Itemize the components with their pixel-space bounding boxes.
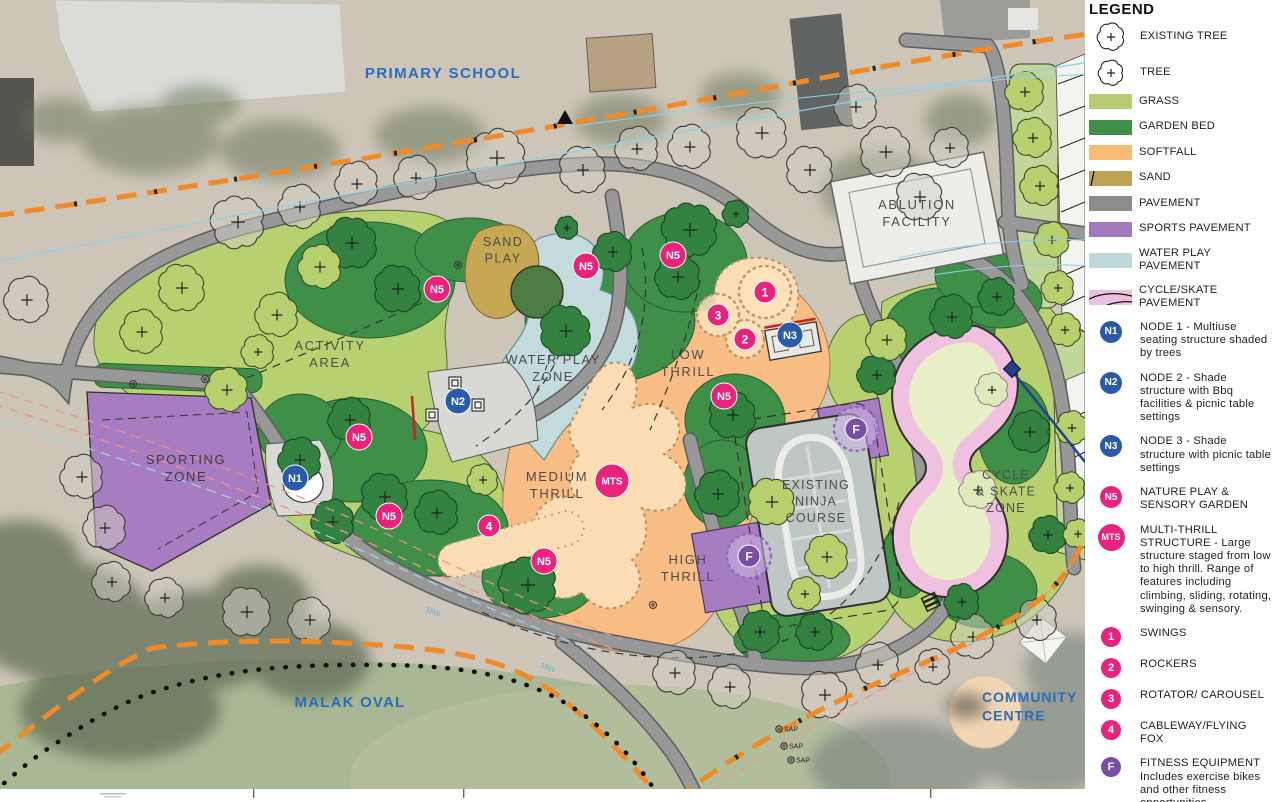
legend-swatch [1089, 196, 1132, 211]
map-marker-N5: N5 [660, 242, 686, 268]
svg-text:N5: N5 [352, 432, 366, 444]
legend-node-text: NODE 2 - Shade structure with Bbq facili… [1140, 372, 1272, 425]
legend-title: LEGEND [1089, 1, 1272, 18]
legend-item-water-play-pavement: WATER PLAY PAVEMENT [1089, 247, 1272, 273]
legend-node-text: ROTATOR/ CAROUSEL [1140, 689, 1264, 702]
legend-swatch [1089, 145, 1132, 160]
svg-text:NINJA: NINJA [795, 495, 837, 509]
legend-swatch [1089, 120, 1132, 135]
node-3-icon: 3 [1089, 689, 1133, 709]
legend-item-node-n5: N5NATURE PLAY & SENSORY GARDEN [1089, 486, 1272, 512]
svg-text:SAP: SAP [796, 758, 810, 765]
tree-symbol-icon [1089, 22, 1133, 52]
legend-item-tree: EXISTING TREE [1089, 22, 1272, 52]
legend-label: PAVEMENT [1139, 197, 1200, 210]
svg-text:ZONE: ZONE [986, 501, 1026, 515]
svg-text:ZONE: ZONE [165, 469, 208, 484]
map-marker-N5: N5 [573, 253, 599, 279]
area-label-malak-oval: MALAK OVAL [295, 694, 406, 711]
legend-label: SPORTS PAVEMENT [1139, 222, 1251, 235]
svg-text:THRILL: THRILL [661, 364, 715, 379]
legend-item-node-4: 4CABLEWAY/FLYING FOX [1089, 720, 1272, 746]
svg-text:N2: N2 [451, 396, 465, 408]
park-masterplan-page: { "legend": { "title": "LEGEND", "tree_i… [0, 0, 1276, 802]
svg-text:ZONE: ZONE [532, 369, 574, 384]
shed-roof [586, 34, 656, 92]
legend-node-text: ROCKERS [1140, 658, 1197, 671]
svg-text:ACTIVITY: ACTIVITY [294, 338, 365, 353]
map-marker-N2: N2 [445, 388, 471, 414]
svg-text:ABLUTION: ABLUTION [878, 197, 956, 212]
legend-item-cycle-skate-pavement: CYCLE/SKATE PAVEMENT [1089, 284, 1272, 310]
area-label-primary-school: PRIMARY SCHOOL [365, 65, 521, 82]
legend-label: CYCLE/SKATE PAVEMENT [1139, 284, 1272, 310]
legend-item-node-3: 3ROTATOR/ CAROUSEL [1089, 689, 1272, 709]
svg-text:N3: N3 [783, 330, 797, 342]
legend-tree-items: EXISTING TREETREE [1089, 22, 1272, 88]
legend-label: TREE [1140, 66, 1171, 79]
node-n1-icon: N1 [1089, 321, 1133, 343]
svg-text:MEDIUM: MEDIUM [526, 469, 588, 484]
svg-text:SPORTING: SPORTING [146, 452, 226, 467]
svg-text:N5: N5 [666, 250, 680, 262]
legend-item-garden-bed: GARDEN BED [1089, 120, 1272, 135]
legend-node-items: N1NODE 1 - Multiuse seating structure sh… [1089, 321, 1272, 802]
legend-swatch [1089, 222, 1132, 237]
svg-text:CENTRE: CENTRE [982, 707, 1046, 723]
legend-node-text: SWINGS [1140, 627, 1187, 640]
svg-text:2: 2 [742, 332, 749, 346]
svg-text:THRILL: THRILL [661, 569, 715, 584]
map-marker-N5: N5 [531, 548, 557, 574]
sheet-edge [0, 789, 1085, 802]
legend-label: WATER PLAY PAVEMENT [1139, 247, 1272, 273]
svg-text:EXISTING: EXISTING [782, 478, 850, 492]
svg-text:N5: N5 [430, 284, 444, 296]
map-marker-4: 4 [478, 515, 500, 537]
svg-text:SAP: SAP [789, 744, 803, 751]
legend-item-node-n2: N2NODE 2 - Shade structure with Bbq faci… [1089, 372, 1272, 425]
svg-text:WATER PLAY: WATER PLAY [505, 352, 600, 367]
svg-text:CYCLE: CYCLE [982, 468, 1030, 482]
svg-text:FACILITY: FACILITY [882, 214, 951, 229]
node-n3-icon: N3 [1089, 435, 1133, 457]
node-1-icon: 1 [1089, 627, 1133, 647]
svg-text:SAND: SAND [483, 235, 523, 249]
legend-item-node-n1: N1NODE 1 - Multiuse seating structure sh… [1089, 321, 1272, 361]
legend-label: SOFTFALL [1139, 146, 1197, 159]
legend-swatch-items: GRASSGARDEN BEDSOFTFALLSANDPAVEMENTSPORT… [1089, 94, 1272, 310]
legend-item-tree: TREE [1089, 58, 1272, 88]
tree-icon [555, 216, 577, 239]
tree-symbol-icon [1089, 58, 1133, 88]
svg-text:SAP: SAP [784, 727, 798, 734]
map-marker-1: 1 [739, 266, 791, 318]
map-marker-N3: N3 [777, 322, 803, 348]
legend-node-text: MULTI-THRILL STRUCTURE - Large structure… [1140, 524, 1272, 617]
legend-node-text: NODE 1 - Multiuse seating structure shad… [1140, 321, 1272, 361]
svg-text:AREA: AREA [309, 355, 351, 370]
map-marker-F: F [727, 534, 771, 578]
legend-item-node-1: 1SWINGS [1089, 627, 1272, 647]
svg-text:& SKATE: & SKATE [976, 485, 1036, 499]
legend-item-node-2: 2ROCKERS [1089, 658, 1272, 678]
legend-node-text: NODE 3 - Shade structure with picnic tab… [1140, 435, 1272, 475]
legend-swatch [1089, 290, 1132, 305]
svg-text:LOW: LOW [671, 347, 705, 362]
svg-text:MTS: MTS [601, 477, 622, 488]
map-marker-MTS: MTS [595, 464, 629, 498]
svg-text:N1: N1 [288, 473, 302, 485]
svg-text:4: 4 [486, 519, 493, 533]
svg-text:HIGH: HIGH [669, 552, 708, 567]
site-plan-map: N1N2N3N5N5N5N5N5N5N5MTS1234FF PRIMARY SC… [0, 0, 1085, 802]
legend-label: SAND [1139, 171, 1171, 184]
svg-text:F: F [745, 549, 752, 563]
node-f-icon: F [1089, 757, 1133, 777]
legend-item-grass: GRASS [1089, 94, 1272, 109]
node-4-icon: 4 [1089, 720, 1133, 740]
svg-text:F: F [852, 422, 859, 436]
map-marker-N5: N5 [711, 383, 737, 409]
legend-item-node-f: FFITNESS EQUIPMENT Includes exercise bik… [1089, 757, 1272, 802]
map-marker-N5: N5 [424, 276, 450, 302]
legend-item-sand: SAND [1089, 171, 1272, 186]
node-mts-icon: MTS [1089, 524, 1133, 551]
map-marker-N1: N1 [282, 465, 308, 491]
node-n5-icon: N5 [1089, 486, 1133, 508]
legend-item-pavement: PAVEMENT [1089, 196, 1272, 211]
legend-item-node-mts: MTSMULTI-THRILL STRUCTURE - Large struct… [1089, 524, 1272, 617]
legend-item-sports-pavement: SPORTS PAVEMENT [1089, 222, 1272, 237]
svg-text:N5: N5 [717, 391, 731, 403]
map-marker-N5: N5 [346, 424, 372, 450]
node-n2-icon: N2 [1089, 372, 1133, 394]
map-marker-N5: N5 [376, 503, 402, 529]
node-2-icon: 2 [1089, 658, 1133, 678]
legend-swatch [1089, 253, 1132, 268]
map-marker-F: F [834, 407, 878, 451]
svg-text:THRILL: THRILL [530, 486, 584, 501]
svg-text:1: 1 [762, 285, 769, 299]
legend-panel: LEGEND EXISTING TREETREE GRASSGARDEN BED… [1085, 0, 1276, 802]
svg-text:N5: N5 [537, 556, 551, 568]
legend-swatch [1089, 94, 1132, 109]
legend-item-node-n3: N3NODE 3 - Shade structure with picnic t… [1089, 435, 1272, 475]
map-marker-3: 3 [697, 294, 739, 336]
legend-node-text: CABLEWAY/FLYING FOX [1140, 720, 1272, 746]
legend-swatch [1089, 171, 1132, 186]
svg-text:COMMUNITY: COMMUNITY [982, 689, 1077, 705]
legend-label: GARDEN BED [1139, 120, 1215, 133]
svg-text:N5: N5 [579, 261, 593, 273]
legend-item-softfall: SOFTFALL [1089, 145, 1272, 160]
svg-text:MALAK OVAL: MALAK OVAL [295, 694, 406, 711]
legend-label: EXISTING TREE [1140, 30, 1228, 43]
legend-node-text: NATURE PLAY & SENSORY GARDEN [1140, 486, 1272, 512]
svg-text:COURSE: COURSE [786, 511, 847, 525]
svg-text:3: 3 [715, 308, 722, 322]
legend-label: GRASS [1139, 95, 1179, 108]
svg-text:PLAY: PLAY [485, 252, 522, 266]
svg-text:PRIMARY SCHOOL: PRIMARY SCHOOL [365, 65, 521, 82]
tree-icon [210, 196, 263, 249]
legend-node-text: FITNESS EQUIPMENT Includes exercise bike… [1140, 757, 1272, 802]
svg-text:N5: N5 [382, 511, 396, 523]
